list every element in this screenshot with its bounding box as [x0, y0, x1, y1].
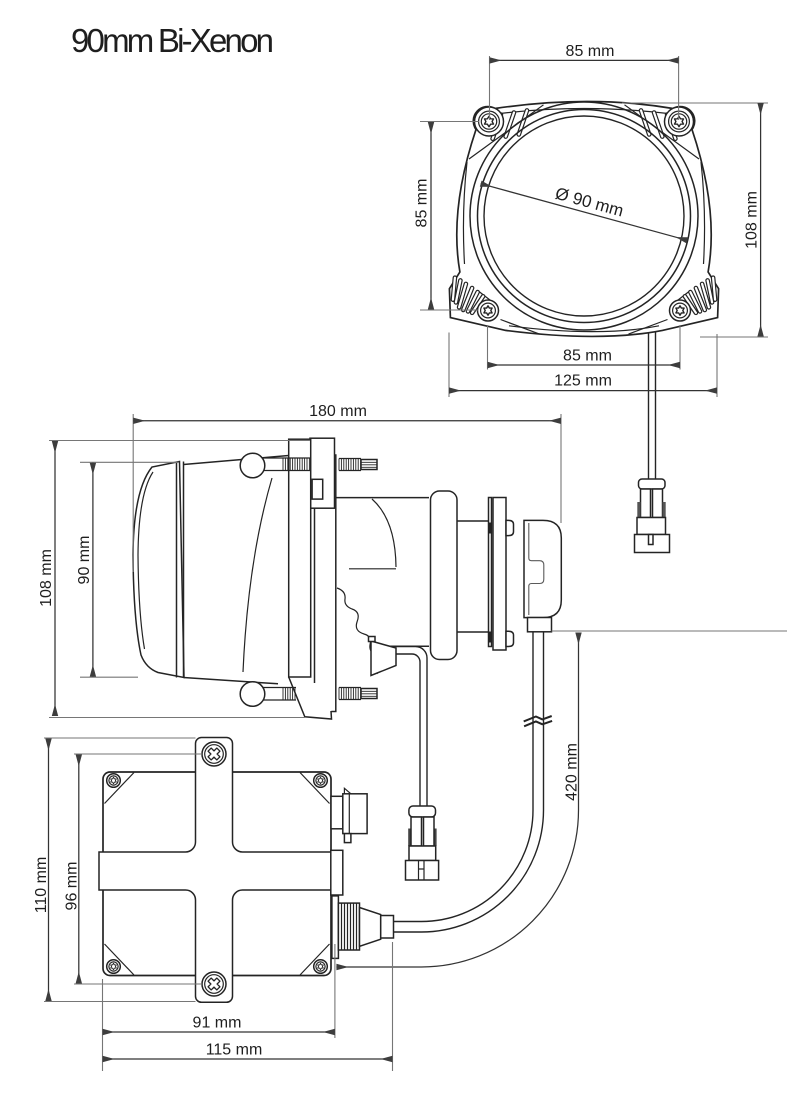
svg-text:108 mm: 108 mm: [38, 549, 55, 607]
svg-text:110 mm: 110 mm: [33, 857, 50, 914]
svg-text:125 mm: 125 mm: [554, 373, 612, 390]
svg-text:85 mm: 85 mm: [563, 347, 612, 364]
svg-text:420 mm: 420 mm: [564, 743, 581, 801]
svg-text:90 mm: 90 mm: [76, 536, 93, 585]
svg-text:90mm Bi-Xenon: 90mm Bi-Xenon: [71, 22, 273, 59]
svg-text:108 mm: 108 mm: [744, 191, 761, 249]
svg-text:115 mm: 115 mm: [206, 1042, 263, 1059]
svg-text:85 mm: 85 mm: [566, 43, 615, 60]
svg-text:96 mm: 96 mm: [64, 862, 81, 911]
svg-text:180 mm: 180 mm: [309, 403, 367, 420]
svg-text:85 mm: 85 mm: [414, 179, 431, 228]
svg-text:91 mm: 91 mm: [193, 1015, 242, 1032]
